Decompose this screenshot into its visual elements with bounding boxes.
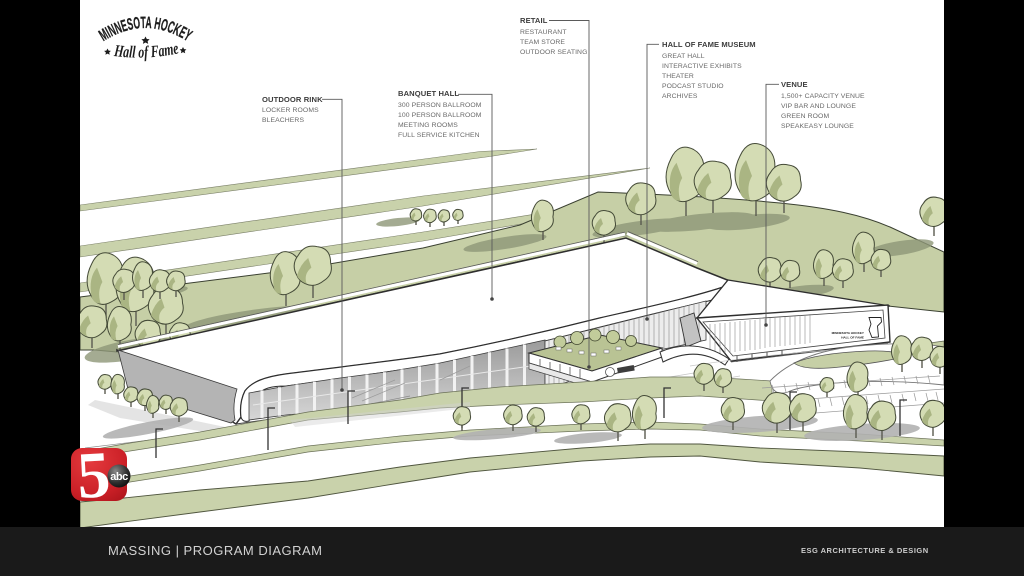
svg-text:HALL OF FAME: HALL OF FAME	[841, 336, 864, 340]
svg-text:5: 5	[75, 438, 112, 513]
svg-text:abc: abc	[110, 471, 128, 483]
svg-text:MINNESOTA HOCKEY: MINNESOTA HOCKEY	[832, 331, 865, 335]
